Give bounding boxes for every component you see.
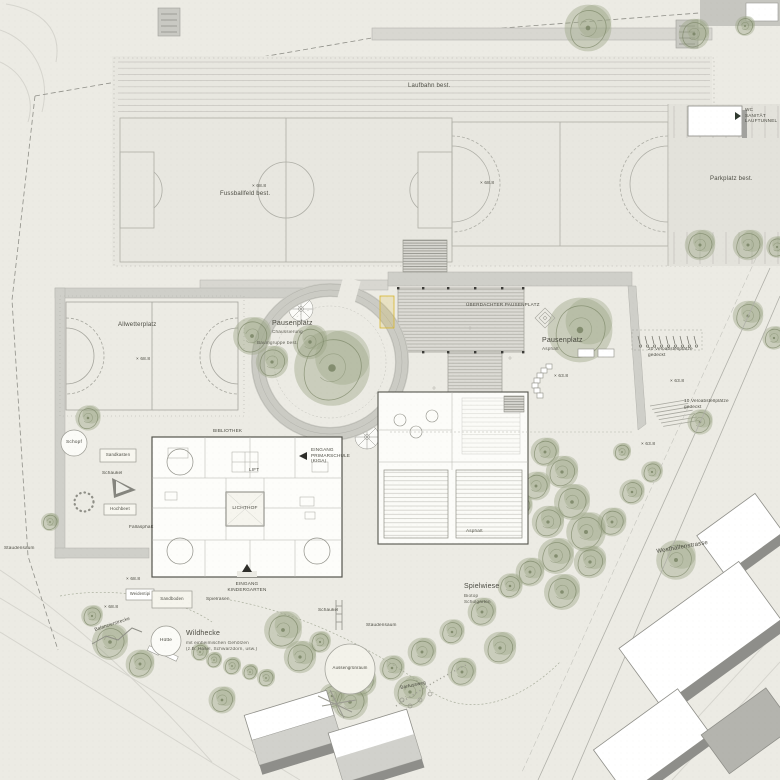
label-spielwiese-sub: Biotop (464, 594, 478, 600)
label-barfussweg: Barfussweg (400, 681, 427, 692)
label-velo20: gedeckt (648, 353, 665, 359)
label-eingang-kindergarten: EINGANG (236, 582, 259, 588)
label-sandkasten: Sandkasten (106, 453, 130, 458)
elevation-marker: × 63.8 (670, 379, 684, 385)
label-hochbeet: Hochbeet (110, 507, 130, 512)
label-parkplatz: Parkplatz best. (710, 176, 753, 184)
elevation-marker: × 68.8 (252, 184, 266, 190)
label-spielwiese-sub: Schulgarten (464, 600, 491, 606)
label-aussengruenraum: Aussengrünraum (333, 666, 368, 671)
label-fallasphalt: Fallasphalt (129, 525, 153, 531)
label-baumgruppe: Baumgruppe best. (257, 341, 298, 347)
plan-labels: Laufbahn best. Fussballfeld best. × 68.8… (0, 0, 780, 780)
label-spielwiese: Spielwiese (464, 583, 499, 592)
elevation-marker: × 63.8 (641, 442, 655, 448)
elevation-marker: × 68.8 (126, 577, 140, 583)
elevation-marker: × 68.8 (136, 357, 150, 363)
label-eingang-primarschule: EINGANG (311, 448, 334, 454)
label-asphalt: Asphalt (466, 529, 483, 535)
site-plan: Laufbahn best. Fussballfeld best. × 68.8… (0, 0, 780, 780)
label-schaukel-2: Schaukel (318, 608, 339, 614)
elevation-marker: × 68.8 (480, 181, 494, 187)
label-schaukel: Schaukel (102, 471, 123, 477)
label-allwetterplatz: Allwetterplatz (118, 322, 156, 330)
label-huette: Hütte (160, 638, 172, 644)
label-ueberdachter-pausenplatz: ÜBERDACHTER PAUSENPLATZ (466, 303, 540, 309)
label-lift: LIFT (249, 468, 259, 474)
label-pausenplatz-west: Pausenplatz (272, 320, 313, 329)
label-staudensaum: Staudensaum (4, 546, 35, 552)
label-schopf: Schopf (66, 440, 82, 446)
label-spielrasen: Spielrasen (206, 597, 230, 603)
label-bibliothek: BIBLIOTHEK (213, 429, 242, 435)
label-staudensaum: Staudensaum (366, 623, 397, 629)
label-pausenplatz-ost-sub: Asphalt (542, 347, 559, 353)
label-fussballfeld: Fussballfeld best. (220, 191, 270, 199)
label-eingang-primarschule: (KIGA) (311, 459, 326, 465)
elevation-marker: × 63.8 (554, 374, 568, 380)
label-balancierstrecke: Balancierstrecke (94, 617, 131, 634)
label-lichthof: LICHTHOF (232, 506, 257, 512)
label-pausenplatz-ost: Pausenplatz (542, 337, 583, 346)
elevation-marker: × 68.8 (104, 605, 118, 611)
label-velo10: 10 Veloabstellplätze (684, 399, 729, 405)
label-wildhecke-sub: mit einheimischen Gehölzen (186, 641, 249, 647)
label-sanitaet: WC (745, 108, 753, 114)
label-eingang-kindergarten: KINDERGARTEN (228, 587, 267, 593)
label-sanitaet: LAUFTUNNEL (745, 119, 777, 125)
label-wildhecke: Wildhecke (186, 630, 220, 639)
label-weidentipi: Weidentipi (130, 592, 150, 597)
label-sandboden: Sandboden (160, 597, 183, 602)
label-wildhecke-sub: (z.B. Hasel, Schwarzdorn, usw.) (186, 647, 257, 653)
label-laufbahn: Laufbahn best. (408, 83, 451, 91)
label-westhallenstrasse: Westhallenstrasse (656, 540, 709, 556)
label-velo20: 20 Veloabstellplätze (648, 347, 693, 353)
label-pausenplatz-west-sub: Chaussierung (272, 330, 303, 336)
label-velo10: gedeckt (684, 405, 701, 411)
